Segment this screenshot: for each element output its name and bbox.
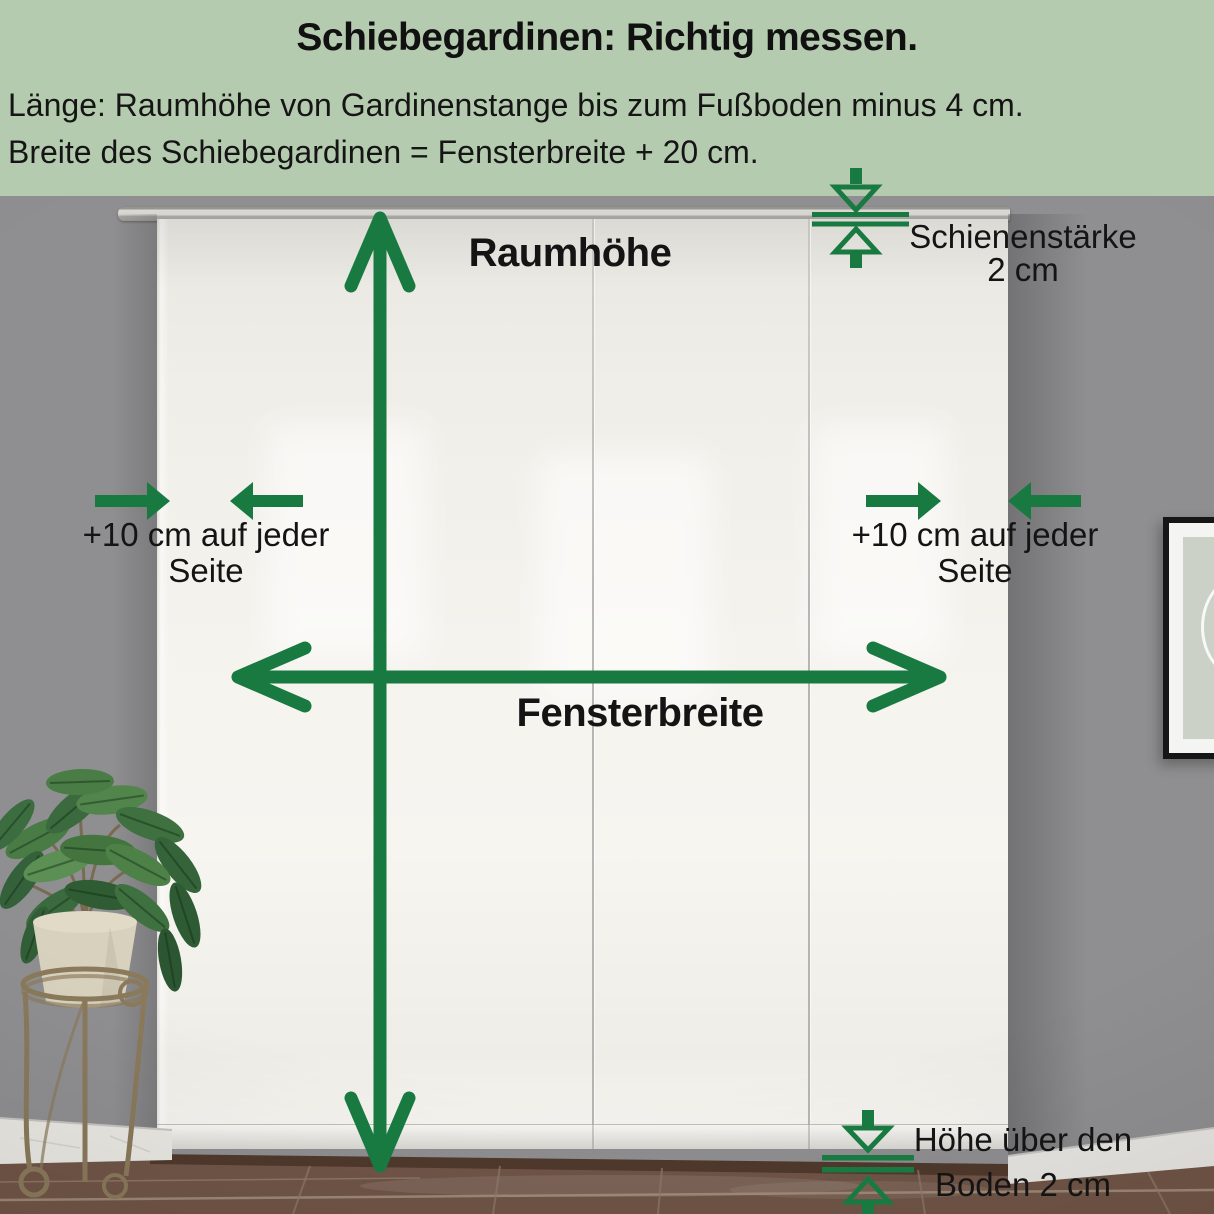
curtain-measuring-infographic: Schiebegardinen: Richtig messen. Länge: … (0, 0, 1214, 1214)
rail-thickness-line1: Schienenstärke (896, 220, 1150, 253)
side-allowance-right-line1: +10 cm auf jeder (827, 517, 1123, 553)
rail-thickness-line2: 2 cm (896, 253, 1150, 286)
room-height-label: Raumhöhe (440, 231, 700, 276)
side-allowance-label-right: +10 cm auf jeder Seite (827, 517, 1123, 589)
rail-thickness-label: Schienenstärke 2 cm (896, 220, 1150, 286)
instruction-length: Länge: Raumhöhe von Gardinenstange bis z… (0, 82, 1214, 129)
side-allowance-left-line2: Seite (58, 553, 354, 589)
header-band: Schiebegardinen: Richtig messen. Länge: … (0, 0, 1214, 196)
side-allowance-right-line2: Seite (827, 553, 1123, 589)
side-allowance-left-line1: +10 cm auf jeder (58, 517, 354, 553)
floor-clearance-label-line2: Boden 2 cm (900, 1167, 1146, 1203)
page-title: Schiebegardinen: Richtig messen. (0, 0, 1214, 60)
instruction-width: Breite des Schiebegardinen = Fensterbrei… (0, 129, 1214, 176)
floor-clearance-label-line1: Höhe über den (900, 1122, 1146, 1158)
side-allowance-label-left: +10 cm auf jeder Seite (58, 517, 354, 589)
window-width-label: Fensterbreite (480, 691, 800, 736)
